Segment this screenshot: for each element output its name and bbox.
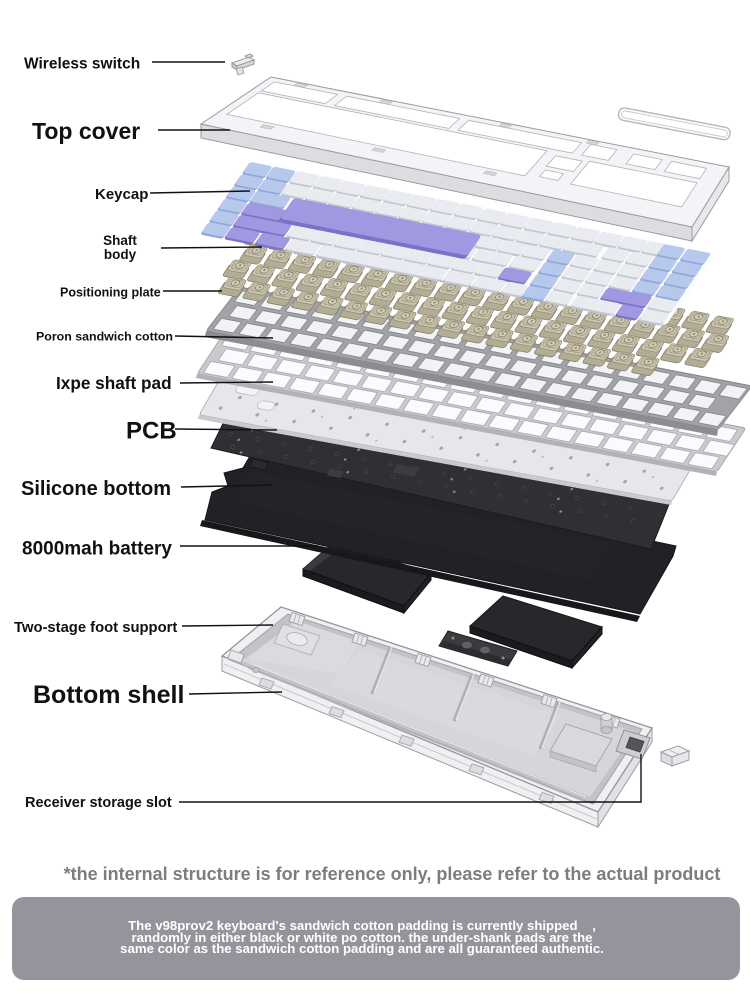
svg-text:Poron sandwich cotton: Poron sandwich cotton bbox=[36, 329, 173, 343]
svg-text:Shaft: Shaft bbox=[103, 233, 137, 248]
svg-text:Positioning plate: Positioning plate bbox=[60, 285, 161, 299]
svg-text:Receiver storage slot: Receiver storage slot bbox=[25, 795, 172, 811]
svg-text:Silicone bottom: Silicone bottom bbox=[21, 478, 171, 500]
svg-text:Top cover: Top cover bbox=[32, 118, 140, 144]
svg-text:Wireless switch: Wireless switch bbox=[24, 55, 140, 72]
svg-text:PCB: PCB bbox=[126, 417, 177, 444]
svg-text:Bottom shell: Bottom shell bbox=[33, 681, 184, 709]
svg-text:Two-stage foot support: Two-stage foot support bbox=[14, 620, 177, 636]
svg-text:body: body bbox=[104, 247, 137, 262]
svg-text:Keycap: Keycap bbox=[95, 186, 148, 203]
svg-text:8000mah battery: 8000mah battery bbox=[22, 539, 172, 560]
svg-text:Ixpe shaft pad: Ixpe shaft pad bbox=[56, 373, 172, 393]
